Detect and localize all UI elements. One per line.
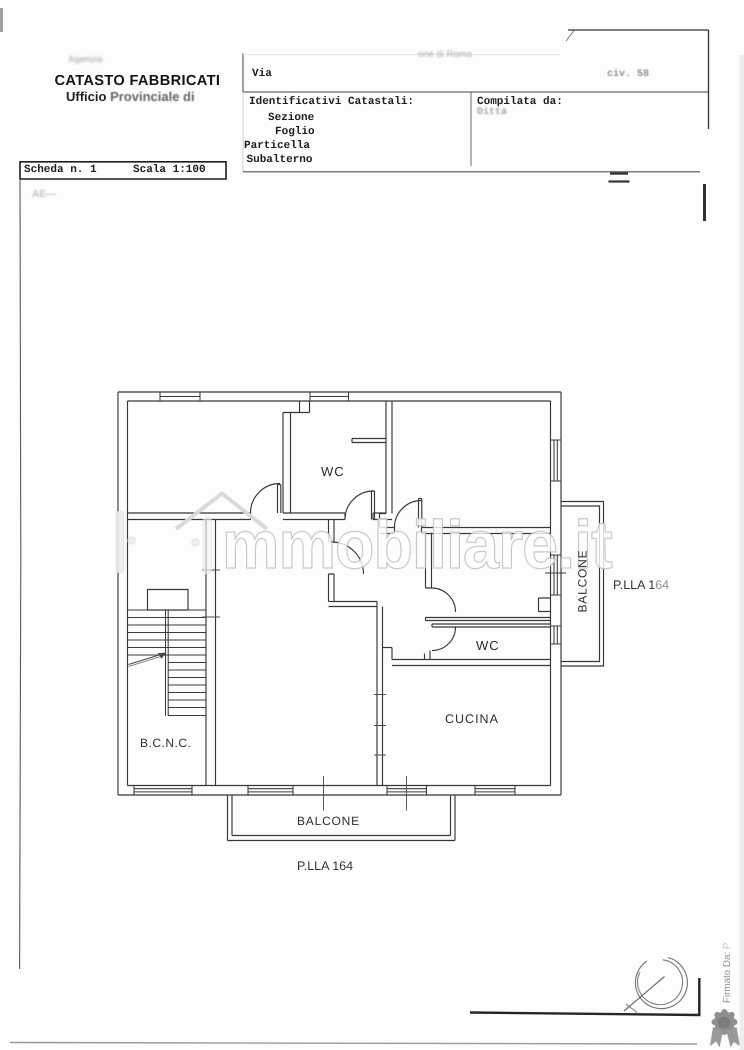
svg-text:Firmato Da: P: Firmato Da: P xyxy=(722,942,733,1003)
